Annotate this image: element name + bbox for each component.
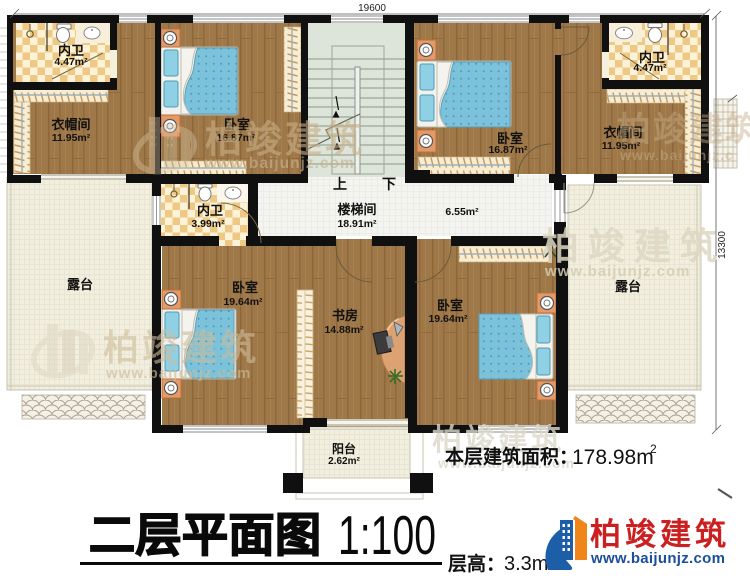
svg-text:本层建筑面积：: 本层建筑面积： bbox=[445, 445, 578, 468]
svg-text:6.55m²: 6.55m² bbox=[445, 206, 479, 218]
svg-text:19.64m²: 19.64m² bbox=[223, 296, 263, 308]
svg-text:卧室: 卧室 bbox=[232, 280, 258, 295]
svg-text:www.baijunjz.com: www.baijunjz.com bbox=[204, 155, 355, 172]
svg-text:柏竣建筑: 柏竣建筑 bbox=[617, 110, 750, 149]
svg-text:3.99m²: 3.99m² bbox=[191, 218, 225, 230]
svg-text:www.baijunjz.c: www.baijunjz.c bbox=[619, 147, 734, 163]
svg-text:层高：: 层高： bbox=[448, 552, 505, 575]
svg-text:柏竣建筑: 柏竣建筑 bbox=[103, 327, 259, 368]
svg-text:11.95m²: 11.95m² bbox=[52, 132, 91, 144]
svg-text:www.baijunjz.com: www.baijunjz.com bbox=[105, 365, 251, 382]
svg-text:楼梯间: 楼梯间 bbox=[337, 202, 376, 217]
svg-text:露台: 露台 bbox=[67, 277, 93, 292]
svg-text:下: 下 bbox=[382, 176, 396, 192]
svg-text:4.47m²: 4.47m² bbox=[633, 62, 667, 74]
svg-text:3.3m: 3.3m bbox=[504, 553, 548, 575]
svg-text:2: 2 bbox=[650, 442, 657, 456]
svg-text:露台: 露台 bbox=[615, 279, 641, 294]
svg-text:衣帽间: 衣帽间 bbox=[51, 117, 90, 132]
svg-text:书房: 书房 bbox=[332, 308, 358, 323]
svg-text:阳台: 阳台 bbox=[332, 441, 356, 456]
svg-text:柏竣建筑: 柏竣建筑 bbox=[205, 118, 365, 160]
svg-text:19600: 19600 bbox=[358, 3, 386, 14]
svg-text:www.baijunjz.com: www.baijunjz.com bbox=[544, 263, 690, 280]
svg-text:2.62m²: 2.62m² bbox=[328, 456, 360, 467]
svg-text:16.87m²: 16.87m² bbox=[488, 144, 528, 156]
svg-text:19.64m²: 19.64m² bbox=[428, 313, 468, 325]
svg-text:18.91m²: 18.91m² bbox=[337, 218, 377, 230]
svg-text:内卫: 内卫 bbox=[197, 203, 223, 218]
svg-text:二层平面图: 二层平面图 bbox=[89, 509, 322, 561]
svg-text:www.baijunjz.com: www.baijunjz.com bbox=[590, 550, 725, 567]
svg-text:柏竣建筑: 柏竣建筑 bbox=[542, 225, 726, 267]
svg-text:1:100: 1:100 bbox=[338, 504, 436, 566]
svg-text:卧室: 卧室 bbox=[437, 298, 463, 313]
svg-text:上: 上 bbox=[333, 176, 347, 192]
svg-text:4.47m²: 4.47m² bbox=[54, 56, 88, 68]
svg-text:柏竣建筑: 柏竣建筑 bbox=[590, 517, 730, 552]
svg-text:14.88m²: 14.88m² bbox=[324, 324, 364, 336]
svg-text:178.98m: 178.98m bbox=[572, 446, 654, 469]
